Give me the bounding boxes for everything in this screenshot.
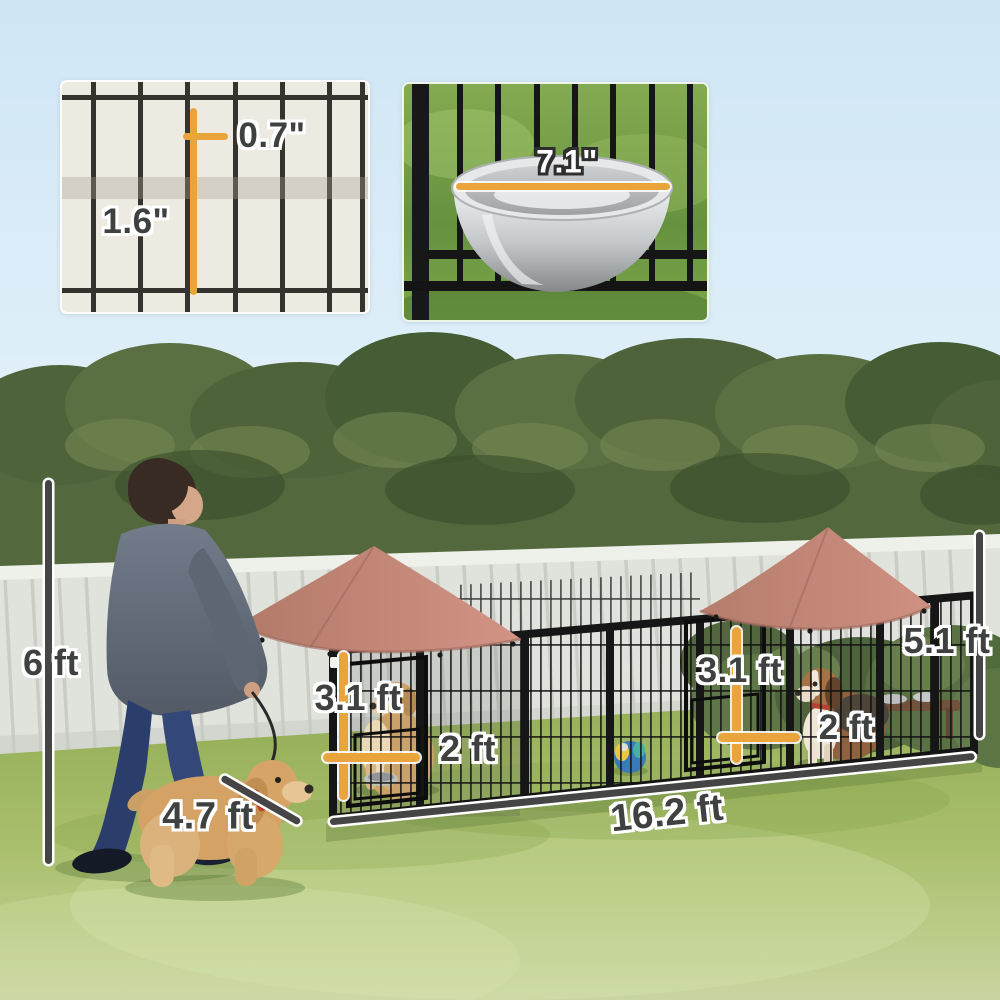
- mesh-shadow-band: [62, 177, 368, 199]
- mesh-spacing-inset: 0.7" 1.6": [60, 80, 370, 314]
- walking-dog-length-label: 4.7 ft: [162, 796, 254, 839]
- right-door-height-label: 3.1 ft: [698, 651, 783, 691]
- mesh-height-label: 1.6": [102, 202, 169, 242]
- right-door-width-line: [718, 733, 800, 742]
- mesh-wire: [62, 95, 368, 100]
- right-door-width-label: 2 ft: [819, 708, 874, 748]
- mesh-wire: [62, 288, 368, 293]
- left-door-height-label: 3.1 ft: [314, 677, 401, 719]
- left-door-width-line: [323, 753, 420, 762]
- bowl-diameter-label: 7.1": [536, 144, 598, 181]
- bowl-diameter-inset: 7.1": [402, 82, 709, 322]
- product-dimension-image: 6 ft 5.1 ft 16.2 ft 4.7 ft 3.1 ft 2 ft 3…: [0, 0, 1000, 1000]
- kennel-height-label: 5.1 ft: [903, 620, 990, 662]
- fence-height-label: 6 ft: [23, 642, 79, 684]
- left-door-height-line: [339, 652, 348, 800]
- bowl-illustration: [404, 84, 707, 320]
- mesh-width-label: 0.7": [238, 116, 305, 156]
- right-door-height-line: [732, 627, 741, 763]
- left-door-width-label: 2 ft: [440, 728, 496, 770]
- bowl-diameter-line: [456, 183, 670, 190]
- mesh-width-line: [183, 133, 228, 140]
